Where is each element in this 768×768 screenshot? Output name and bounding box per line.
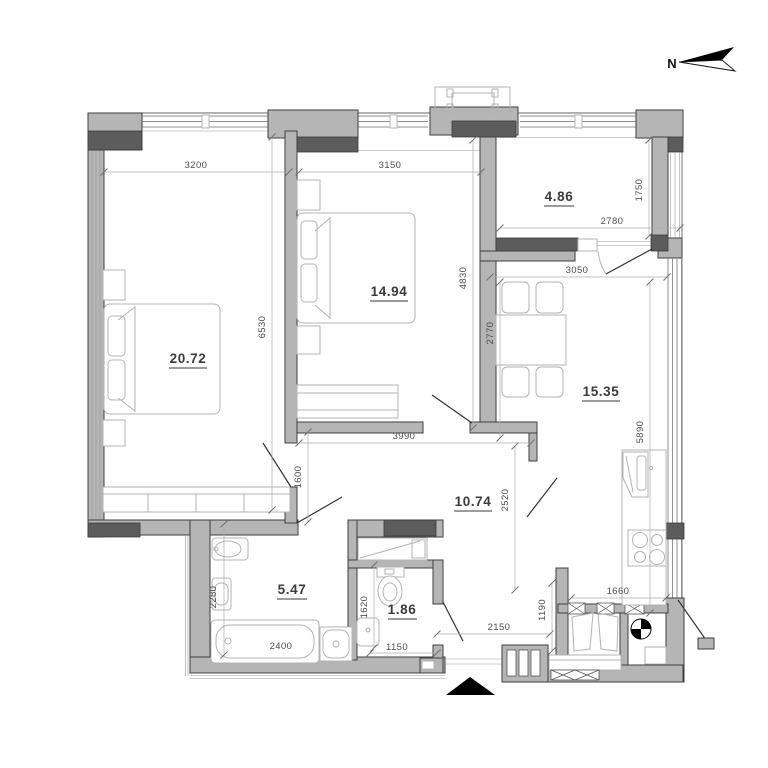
door-bedroom-large — [263, 443, 291, 487]
bedroom-small-furniture — [297, 180, 415, 418]
entrance-arrow-icon — [446, 677, 495, 695]
duct-shaft — [384, 520, 436, 536]
bedroom-large-furniture — [103, 270, 290, 512]
svg-text:2770: 2770 — [485, 322, 496, 345]
door-bedroom-small — [432, 395, 472, 423]
room-area-wc: 1.86 — [388, 602, 417, 617]
room-area-bedroom-small: 14.94 — [371, 284, 408, 299]
kitchen-counter — [622, 450, 666, 605]
room-area-bathroom: 5.47 — [278, 582, 307, 597]
svg-text:2520: 2520 — [500, 489, 511, 512]
svg-text:1150: 1150 — [386, 642, 408, 653]
dining-table — [496, 315, 566, 365]
window-band-top — [104, 115, 652, 151]
svg-text:3990: 3990 — [393, 431, 416, 442]
svg-text:2280: 2280 — [208, 586, 219, 609]
window-wall-right — [668, 258, 682, 600]
svg-text:6530: 6530 — [257, 316, 268, 339]
nightstand — [103, 420, 125, 446]
north-arrow-icon: N — [667, 47, 735, 71]
wc-fixtures — [357, 538, 427, 646]
svg-text:1600: 1600 — [293, 466, 304, 489]
chair — [502, 282, 529, 313]
storage-door-leaf — [578, 239, 597, 251]
svg-text:2780: 2780 — [601, 216, 624, 227]
section-marker-icon — [631, 619, 651, 639]
washing-machine — [320, 627, 352, 661]
north-label: N — [667, 56, 676, 71]
pier — [268, 110, 358, 138]
dim-bedroom-large-height: 6530 — [257, 134, 276, 514]
pier — [636, 110, 683, 138]
window-mullion — [575, 115, 582, 128]
room-area-bedroom-large: 20.72 — [170, 351, 207, 366]
svg-text:2400: 2400 — [270, 641, 293, 652]
floor-plan: 3200 3150 6530 4830 1750 2780 — [0, 0, 768, 768]
window-mullion — [390, 115, 397, 128]
bathtub — [211, 620, 319, 663]
dim-bedroom-small-width: 3150 — [296, 160, 485, 176]
dim-bedroom-large-width: 3200 — [101, 160, 293, 176]
svg-text:3200: 3200 — [185, 160, 208, 171]
door-kitchen — [527, 478, 557, 517]
nightstand — [103, 270, 125, 300]
room-area-storage: 4.86 — [545, 189, 574, 204]
dresser — [297, 385, 398, 418]
entry-shaft — [502, 645, 548, 682]
svg-text:1750: 1750 — [634, 179, 645, 202]
svg-text:2150: 2150 — [488, 622, 511, 633]
door-wc — [443, 602, 463, 641]
svg-text:3150: 3150 — [379, 160, 402, 171]
svg-text:3050: 3050 — [566, 265, 589, 276]
window-mullion — [202, 115, 209, 128]
door-storage — [606, 249, 652, 274]
svg-text:4830: 4830 — [458, 267, 469, 290]
svg-text:1620: 1620 — [359, 596, 370, 619]
dim-entry-width: 2150 — [434, 622, 554, 638]
room-area-kitchen: 15.35 — [583, 384, 620, 399]
door-bathroom — [297, 497, 342, 523]
nightstand — [297, 326, 320, 354]
dining-set — [496, 282, 566, 397]
dim-bedroom-small-height: 4830 — [458, 137, 477, 432]
room-area-hallway: 10.74 — [455, 494, 492, 509]
floor-plan-drawing: 3200 3150 6530 4830 1750 2780 — [0, 0, 768, 768]
dim-vestibule-depth: 1190 — [537, 580, 556, 655]
counter — [622, 450, 666, 605]
chair — [536, 282, 563, 313]
svg-text:1660: 1660 — [607, 586, 630, 597]
nightstand — [297, 180, 320, 210]
dim-kitchen-width: 3050 — [487, 265, 671, 281]
dim-bathtub-length: 2400 — [270, 641, 293, 652]
dim-hall-right-height: 2520 — [500, 443, 519, 594]
svg-text:5890: 5890 — [635, 421, 646, 444]
chair — [502, 367, 529, 397]
chair — [536, 367, 563, 397]
svg-text:1190: 1190 — [537, 599, 548, 621]
dim-storage-height: 1750 — [634, 137, 653, 240]
double-bed — [297, 213, 415, 323]
